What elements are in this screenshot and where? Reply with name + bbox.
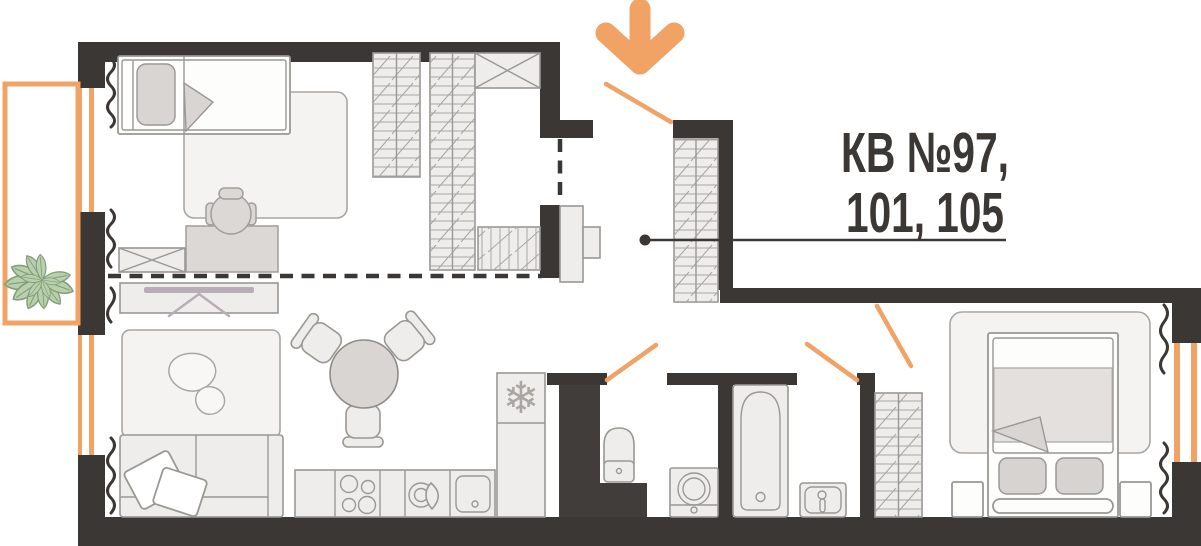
window-left-1-frame bbox=[89, 88, 94, 212]
tv bbox=[144, 287, 254, 293]
bathroom-sink bbox=[800, 483, 846, 517]
floor-plan: ❄ bbox=[0, 0, 1201, 546]
wall-right-bottom-block bbox=[1172, 462, 1201, 546]
tv-console bbox=[120, 283, 278, 316]
entrance-arrow-icon bbox=[606, 9, 674, 64]
window-right-frame bbox=[1191, 343, 1197, 462]
double-bed bbox=[988, 333, 1118, 517]
hall-console bbox=[560, 206, 600, 282]
wardrobe bbox=[373, 53, 420, 177]
crossed-cabinet-window bbox=[119, 248, 185, 272]
bathroom-door-swing bbox=[807, 344, 857, 380]
crossed-cabinet-top bbox=[475, 53, 540, 88]
wall-bedroom-left bbox=[860, 375, 875, 517]
wall-wc-top-left bbox=[547, 373, 607, 385]
bedroom-door-swing bbox=[877, 306, 911, 366]
wall-partition bbox=[540, 205, 560, 278]
entrance-door-swing bbox=[606, 84, 671, 122]
pillow bbox=[999, 458, 1046, 494]
wall-hall-right bbox=[718, 120, 733, 290]
nightstand bbox=[1120, 482, 1151, 517]
bedroom-wardrobe bbox=[875, 393, 922, 517]
kitchen-counter bbox=[295, 470, 495, 517]
wall-entry-left-foot bbox=[557, 120, 593, 138]
bathtub bbox=[733, 385, 788, 517]
bathroom bbox=[733, 385, 846, 517]
hall-wardrobe bbox=[674, 139, 718, 302]
window-right bbox=[1174, 343, 1180, 462]
bed-footboard bbox=[993, 499, 1113, 513]
apartment-label-line2: 101, 105 bbox=[846, 181, 1004, 245]
wall-bottom bbox=[78, 517, 1201, 546]
wc-door-swing bbox=[607, 345, 656, 380]
sofa bbox=[120, 435, 283, 517]
wall-right-top-block bbox=[1172, 288, 1201, 343]
wall-left-top-block bbox=[78, 42, 105, 88]
dining-set bbox=[289, 309, 437, 447]
wall-left-mid-block bbox=[78, 212, 105, 335]
leader-dot bbox=[640, 235, 651, 246]
toilet bbox=[604, 428, 634, 482]
room-living-kitchen: ❄ bbox=[120, 283, 545, 517]
snowflake-icon: ❄ bbox=[503, 373, 540, 424]
wall-wc-bath-divider bbox=[718, 383, 733, 517]
plant-icon bbox=[4, 253, 75, 311]
nightstand bbox=[952, 482, 983, 517]
rug bbox=[122, 330, 280, 438]
fridge: ❄ bbox=[497, 373, 545, 517]
pillow bbox=[137, 64, 175, 125]
window-left-1 bbox=[78, 88, 82, 212]
apartment-label-line1: КВ №97, bbox=[841, 121, 1009, 185]
single-bed bbox=[118, 56, 290, 134]
shelf-unit bbox=[478, 227, 540, 270]
room-bedroom bbox=[875, 312, 1151, 517]
window-left-2-frame bbox=[89, 335, 94, 455]
wall-bedroom-top bbox=[720, 288, 1201, 303]
room-study bbox=[118, 53, 540, 272]
pillow bbox=[1056, 458, 1103, 494]
round-table bbox=[330, 340, 398, 408]
window-left-2 bbox=[78, 335, 82, 455]
washing-machine bbox=[670, 468, 718, 517]
wardrobe bbox=[430, 53, 475, 270]
